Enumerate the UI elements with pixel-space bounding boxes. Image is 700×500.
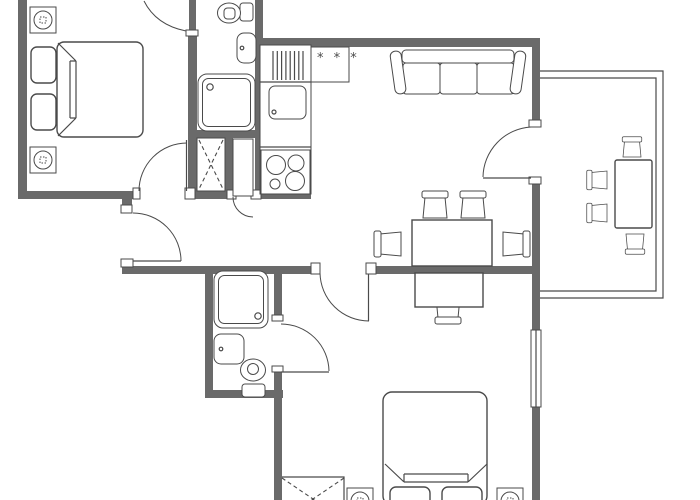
bedroom-2 xyxy=(282,273,523,500)
pillow xyxy=(390,487,430,500)
sofa-seat xyxy=(477,63,514,94)
jamb xyxy=(529,120,541,127)
wall-bedroom1-bottom xyxy=(18,191,138,199)
pillow xyxy=(31,47,56,83)
toilet xyxy=(241,359,266,397)
desk-set xyxy=(415,273,483,324)
wall-right-middle xyxy=(532,184,540,330)
bathroom-1 xyxy=(198,3,256,131)
jamb xyxy=(311,263,320,274)
wall-bathroom2-left xyxy=(205,266,213,398)
washbasin-bowl xyxy=(214,334,244,364)
wall-bedroom1-left xyxy=(18,0,27,199)
jamb xyxy=(121,205,132,213)
sofa-seat xyxy=(403,63,440,94)
wall-bathroom2-right-upper xyxy=(274,266,282,318)
door-top-leaf xyxy=(189,0,196,30)
floor-plan: * * * xyxy=(0,0,700,500)
wardrobe-box xyxy=(197,138,225,191)
door-balcony-arc xyxy=(483,127,531,177)
bathroom-2 xyxy=(214,271,268,397)
balcony xyxy=(540,71,663,298)
jamb xyxy=(272,315,283,321)
wall-bedroom2-left xyxy=(274,370,282,500)
desk xyxy=(415,273,483,307)
toilet-seat xyxy=(248,364,259,375)
kitchen: * * * xyxy=(260,45,360,194)
door-bathroom2-arc xyxy=(281,324,329,371)
wardrobe-closet xyxy=(282,477,344,500)
kitchen-sink xyxy=(269,86,306,119)
dining-chair xyxy=(422,191,448,218)
sofa xyxy=(390,50,527,95)
nightstand-lamp xyxy=(347,488,373,500)
jamb xyxy=(121,259,133,267)
nightstand-lamp xyxy=(30,7,56,33)
dining-set xyxy=(374,191,530,266)
jamb xyxy=(272,366,283,372)
nightstand-lamp xyxy=(30,147,56,173)
balcony-chair xyxy=(625,234,645,254)
double-bed xyxy=(31,42,143,137)
wardrobe-cross xyxy=(282,478,344,500)
wall-right-lower xyxy=(532,407,540,500)
jamb xyxy=(366,263,376,274)
burner xyxy=(270,179,280,189)
shower-inner xyxy=(219,276,264,324)
wardrobe-closet xyxy=(197,138,225,191)
balcony-chair xyxy=(587,203,607,223)
shower-cabin xyxy=(214,271,268,328)
washbasin xyxy=(237,33,256,63)
door-top-arc xyxy=(144,1,186,31)
wall-bedroom1-right xyxy=(188,34,197,199)
balcony-chair xyxy=(587,170,607,190)
toilet-tank xyxy=(240,3,253,21)
living-dining-room xyxy=(374,50,530,266)
pillow xyxy=(442,487,482,500)
washbasin xyxy=(214,334,244,364)
door-bedroom2-arc xyxy=(320,273,369,321)
toilet-tank xyxy=(242,384,265,397)
toilet xyxy=(218,3,254,23)
floor-plan-drawing: * * * xyxy=(0,0,700,500)
pillow xyxy=(31,94,56,130)
balcony-chair xyxy=(622,137,642,157)
sofa-back xyxy=(402,50,514,63)
freezer-stars: * * * xyxy=(317,51,360,66)
door-bedroom1-arc xyxy=(139,143,187,191)
wall-right-upper xyxy=(532,38,540,125)
burner xyxy=(267,156,286,175)
shower-cabin xyxy=(198,74,255,131)
nightstand-lamp xyxy=(497,488,523,500)
shower-inner xyxy=(203,79,251,127)
burner xyxy=(288,155,304,171)
sofa-seat xyxy=(440,63,477,94)
wardrobe-box xyxy=(282,477,344,500)
jamb xyxy=(186,30,198,36)
door-entry-arc xyxy=(133,213,181,261)
burner xyxy=(286,172,305,191)
window-right xyxy=(531,330,541,407)
door-kitchen-arc xyxy=(233,197,253,217)
balcony-table xyxy=(615,160,652,228)
freezer: * * * xyxy=(311,47,360,82)
wall-closet-right xyxy=(225,138,233,191)
dining-chair xyxy=(460,191,486,218)
dining-chair xyxy=(503,231,530,257)
dining-table xyxy=(412,220,492,266)
toilet-seat xyxy=(224,8,235,19)
double-bed xyxy=(383,392,487,500)
dining-chair xyxy=(374,231,401,257)
cooktop xyxy=(261,150,310,194)
kitchen-doorway-niche xyxy=(233,139,253,196)
mattress xyxy=(383,392,487,500)
